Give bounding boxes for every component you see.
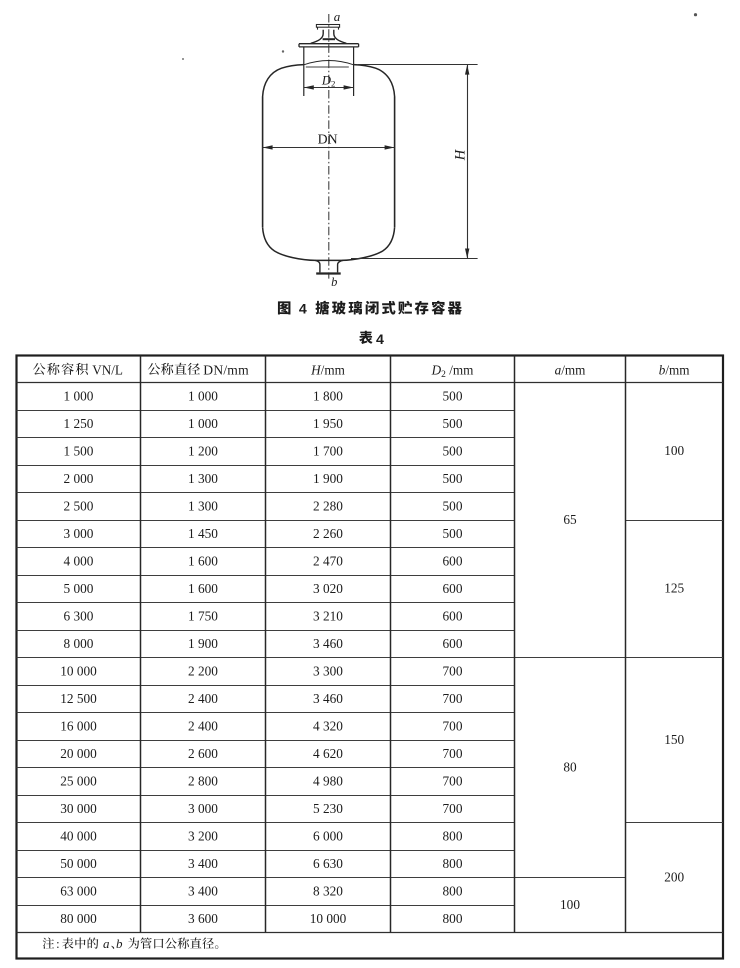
- svg-text:3 000: 3 000: [188, 801, 218, 816]
- svg-text:2 400: 2 400: [188, 691, 218, 706]
- svg-text:10 000: 10 000: [60, 664, 97, 679]
- svg-text:5 000: 5 000: [64, 581, 94, 596]
- svg-text:30 000: 30 000: [60, 801, 97, 816]
- svg-text:1 200: 1 200: [188, 444, 218, 459]
- svg-text:b: b: [331, 275, 337, 289]
- svg-text:80 000: 80 000: [60, 911, 97, 926]
- svg-text:3 400: 3 400: [188, 856, 218, 871]
- svg-text:2 400: 2 400: [188, 719, 218, 734]
- svg-text:2 470: 2 470: [313, 554, 343, 569]
- svg-text:3 020: 3 020: [313, 581, 343, 596]
- svg-text:100: 100: [664, 443, 684, 458]
- svg-text:a/mm: a/mm: [555, 363, 587, 378]
- svg-text:800: 800: [443, 884, 463, 899]
- svg-text:1 300: 1 300: [188, 499, 218, 514]
- svg-text:2 500: 2 500: [64, 499, 94, 514]
- svg-text:1 600: 1 600: [188, 554, 218, 569]
- svg-text:4 620: 4 620: [313, 746, 343, 761]
- svg-text:3 000: 3 000: [64, 526, 94, 541]
- svg-text:20 000: 20 000: [60, 746, 97, 761]
- svg-text:125: 125: [664, 581, 684, 596]
- svg-text:3 600: 3 600: [188, 911, 218, 926]
- svg-text:12 500: 12 500: [60, 691, 97, 706]
- svg-text:500: 500: [443, 389, 463, 404]
- svg-text:a: a: [334, 9, 341, 24]
- svg-text:700: 700: [443, 664, 463, 679]
- svg-text:DN: DN: [318, 132, 338, 147]
- svg-text:1 750: 1 750: [188, 609, 218, 624]
- svg-text:8 320: 8 320: [313, 884, 343, 899]
- svg-text:700: 700: [443, 746, 463, 761]
- svg-text:3 460: 3 460: [313, 691, 343, 706]
- svg-text:800: 800: [443, 829, 463, 844]
- svg-text:500: 500: [443, 471, 463, 486]
- svg-text:40 000: 40 000: [60, 829, 97, 844]
- svg-text:6 630: 6 630: [313, 856, 343, 871]
- svg-text:VN/L: VN/L: [92, 363, 123, 378]
- svg-text:3 400: 3 400: [188, 884, 218, 899]
- svg-text:2 200: 2 200: [188, 664, 218, 679]
- svg-text:1 950: 1 950: [313, 416, 343, 431]
- svg-text:4 000: 4 000: [64, 554, 94, 569]
- svg-text:700: 700: [443, 774, 463, 789]
- svg-text:1 600: 1 600: [188, 581, 218, 596]
- svg-text:700: 700: [443, 801, 463, 816]
- svg-text:1 500: 1 500: [64, 444, 94, 459]
- svg-text:DN/mm: DN/mm: [203, 363, 249, 378]
- svg-text:500: 500: [443, 444, 463, 459]
- svg-text:2 800: 2 800: [188, 774, 218, 789]
- svg-text:b/mm: b/mm: [659, 363, 691, 378]
- svg-text:600: 600: [443, 609, 463, 624]
- svg-text:200: 200: [664, 869, 684, 884]
- svg-text:25 000: 25 000: [60, 774, 97, 789]
- svg-text:10 000: 10 000: [310, 911, 347, 926]
- svg-text:700: 700: [443, 719, 463, 734]
- svg-text:4: 4: [299, 302, 307, 318]
- svg-text:1 800: 1 800: [313, 389, 343, 404]
- svg-text:16 000: 16 000: [60, 719, 97, 734]
- svg-text:1 000: 1 000: [188, 416, 218, 431]
- svg-text:700: 700: [443, 691, 463, 706]
- svg-text:100: 100: [560, 897, 580, 912]
- svg-text:2 000: 2 000: [64, 471, 94, 486]
- svg-text:2 280: 2 280: [313, 499, 343, 514]
- svg-text:4 320: 4 320: [313, 719, 343, 734]
- svg-text:1 250: 1 250: [64, 416, 94, 431]
- svg-text:600: 600: [443, 554, 463, 569]
- svg-text:80: 80: [563, 759, 577, 774]
- svg-text:1 000: 1 000: [188, 389, 218, 404]
- svg-text:1 300: 1 300: [188, 471, 218, 486]
- svg-text:6 000: 6 000: [313, 829, 343, 844]
- svg-text:600: 600: [443, 636, 463, 651]
- svg-text:2 600: 2 600: [188, 746, 218, 761]
- svg-text::: :: [56, 937, 59, 951]
- svg-text:a: a: [103, 936, 110, 951]
- svg-text:5 230: 5 230: [313, 801, 343, 816]
- svg-text:800: 800: [443, 856, 463, 871]
- svg-text:H: H: [453, 148, 469, 161]
- svg-text:1 450: 1 450: [188, 526, 218, 541]
- svg-text:63 000: 63 000: [60, 884, 97, 899]
- svg-text:4 980: 4 980: [313, 774, 343, 789]
- svg-text:1 900: 1 900: [313, 471, 343, 486]
- svg-text:50 000: 50 000: [60, 856, 97, 871]
- svg-text:500: 500: [443, 416, 463, 431]
- svg-text:800: 800: [443, 911, 463, 926]
- svg-text:150: 150: [664, 732, 684, 747]
- svg-text:1 000: 1 000: [64, 389, 94, 404]
- svg-text:8 000: 8 000: [64, 636, 94, 651]
- svg-text:600: 600: [443, 581, 463, 596]
- svg-text:3 300: 3 300: [313, 664, 343, 679]
- svg-text:3 460: 3 460: [313, 636, 343, 651]
- svg-text:4: 4: [376, 332, 384, 348]
- svg-text:1 700: 1 700: [313, 444, 343, 459]
- svg-text:3 200: 3 200: [188, 829, 218, 844]
- svg-text:H/mm: H/mm: [310, 363, 345, 378]
- svg-text:6 300: 6 300: [64, 609, 94, 624]
- svg-text:65: 65: [563, 512, 577, 527]
- svg-text:500: 500: [443, 499, 463, 514]
- svg-text:500: 500: [443, 526, 463, 541]
- svg-text:1 900: 1 900: [188, 636, 218, 651]
- svg-text:3 210: 3 210: [313, 609, 343, 624]
- svg-text:D2 /mm: D2 /mm: [431, 363, 474, 381]
- svg-text:2 260: 2 260: [313, 526, 343, 541]
- svg-text:b: b: [116, 936, 123, 951]
